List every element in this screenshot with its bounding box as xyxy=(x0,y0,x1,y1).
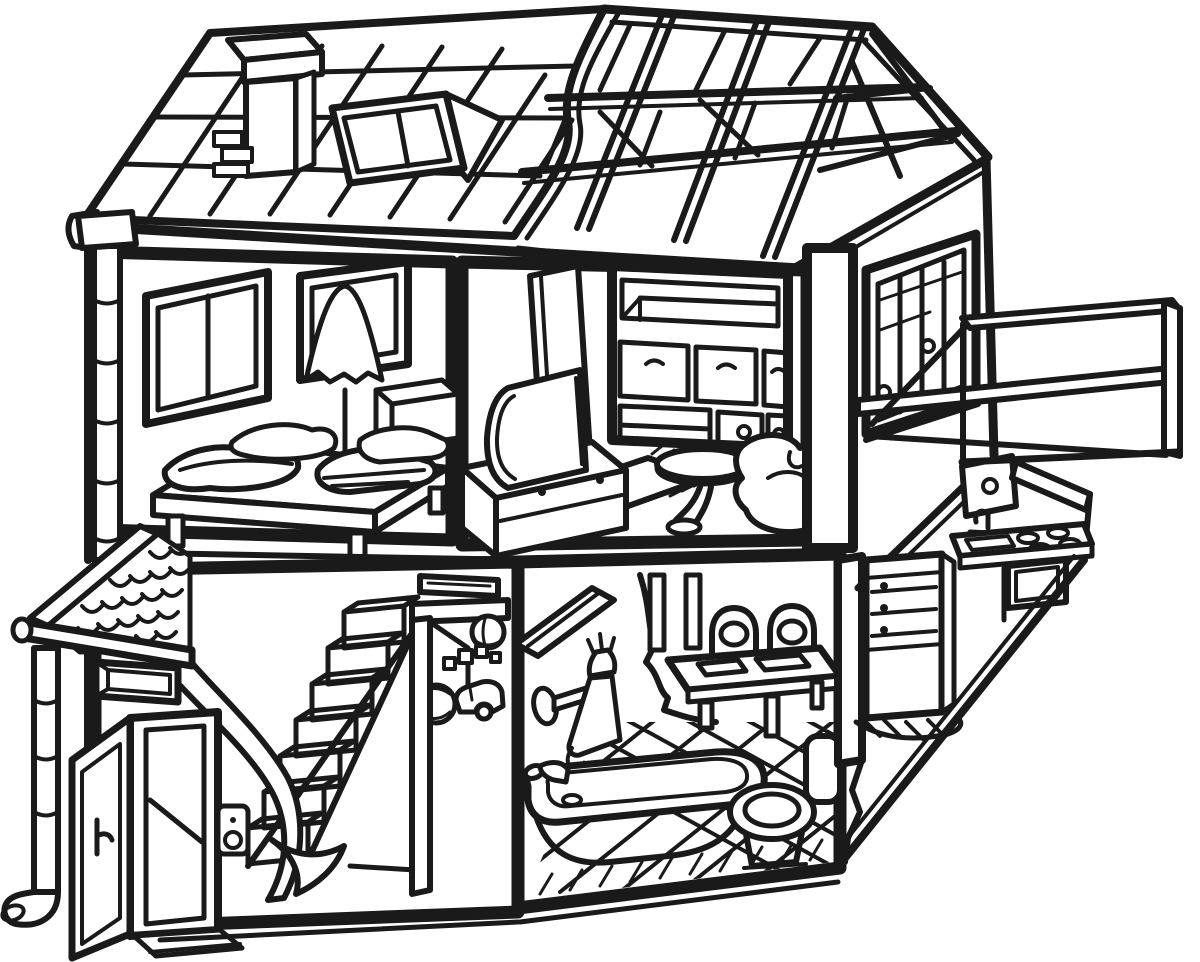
fridge-knob-3 xyxy=(880,626,888,634)
chimney-body-side xyxy=(296,72,314,172)
blanket-back xyxy=(359,428,448,462)
light-switch-dot xyxy=(230,817,236,823)
living-room xyxy=(462,262,833,556)
fridge-knob-1 xyxy=(880,582,888,590)
toy-car-wheel xyxy=(477,705,491,719)
house-right-edge xyxy=(986,158,994,455)
range-hood-shelf xyxy=(1012,462,1090,510)
toy-car-window xyxy=(470,688,472,700)
tv-stand-knob-2 xyxy=(596,476,604,484)
kitchen xyxy=(838,456,1092,862)
corner-post-upper xyxy=(807,248,853,548)
refrigerator-side xyxy=(942,554,954,712)
skylight xyxy=(332,94,502,183)
front-door xyxy=(72,712,248,958)
bedroom xyxy=(100,252,458,560)
roof-rafters xyxy=(518,9,988,278)
balcony-floor-edge xyxy=(868,436,1166,455)
house-cutaway-illustration: Two-story dollhouse cutaway coloring pag… xyxy=(0,0,1200,962)
gutter-head xyxy=(78,212,136,248)
pillow-stack-back xyxy=(231,425,336,460)
downspout-lower xyxy=(34,648,58,892)
downspout-upper xyxy=(94,246,120,560)
balcony-right-post xyxy=(1164,302,1180,456)
porch-fascia-cap xyxy=(13,619,31,641)
side-table-foot xyxy=(668,520,700,534)
coloring-page: Two-story dollhouse cutaway coloring pag… xyxy=(0,0,1200,962)
open-door-edge xyxy=(412,618,430,894)
balcony-top-rail xyxy=(962,300,1180,328)
fridge-knob-2 xyxy=(880,604,888,612)
tv-stand-knob-1 xyxy=(538,488,546,496)
